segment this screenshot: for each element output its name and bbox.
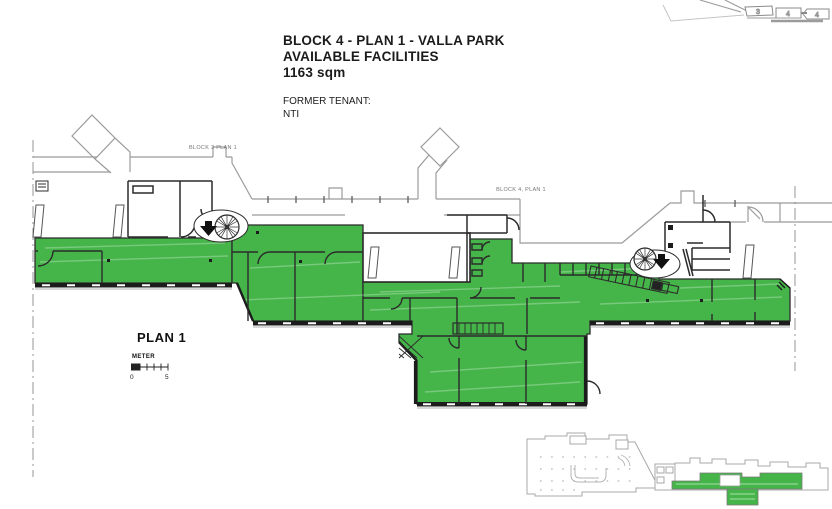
excluded-middle-room [363,233,470,282]
key-plan: 3 4 4 [663,0,829,21]
scale-start: 0 [130,374,134,381]
overview-hall-outline [527,433,659,496]
spiral-stair-left [194,210,248,242]
scale-end: 5 [165,374,169,381]
building-envelope [33,115,832,243]
key-plan-block3-number: 3 [756,9,760,16]
plan-title-and-scale: PLAN 1 METER 0 5 [130,330,186,381]
plan-name: PLAN 1 [137,330,186,345]
floor-plan-drawing: 3 4 4 [0,0,832,509]
scale-unit-label: METER [132,354,155,360]
key-plan-block4b-number: 4 [815,12,819,19]
key-plan-block4a-number: 4 [786,11,790,18]
block4-plan-label: BLOCK 4, PLAN 1 [496,187,546,193]
overview-map [527,433,828,505]
block3-plan-label: BLOCK 3 PLAN 1 [189,145,237,151]
available-area-left-band [35,238,232,283]
corridor-ticks [268,196,735,207]
scale-bar [132,364,169,371]
available-area-mid-block [232,225,363,321]
spiral-stair-right [630,248,680,278]
drawing-sheet: BLOCK 4 - PLAN 1 - VALLA PARK AVAILABLE … [0,0,832,509]
